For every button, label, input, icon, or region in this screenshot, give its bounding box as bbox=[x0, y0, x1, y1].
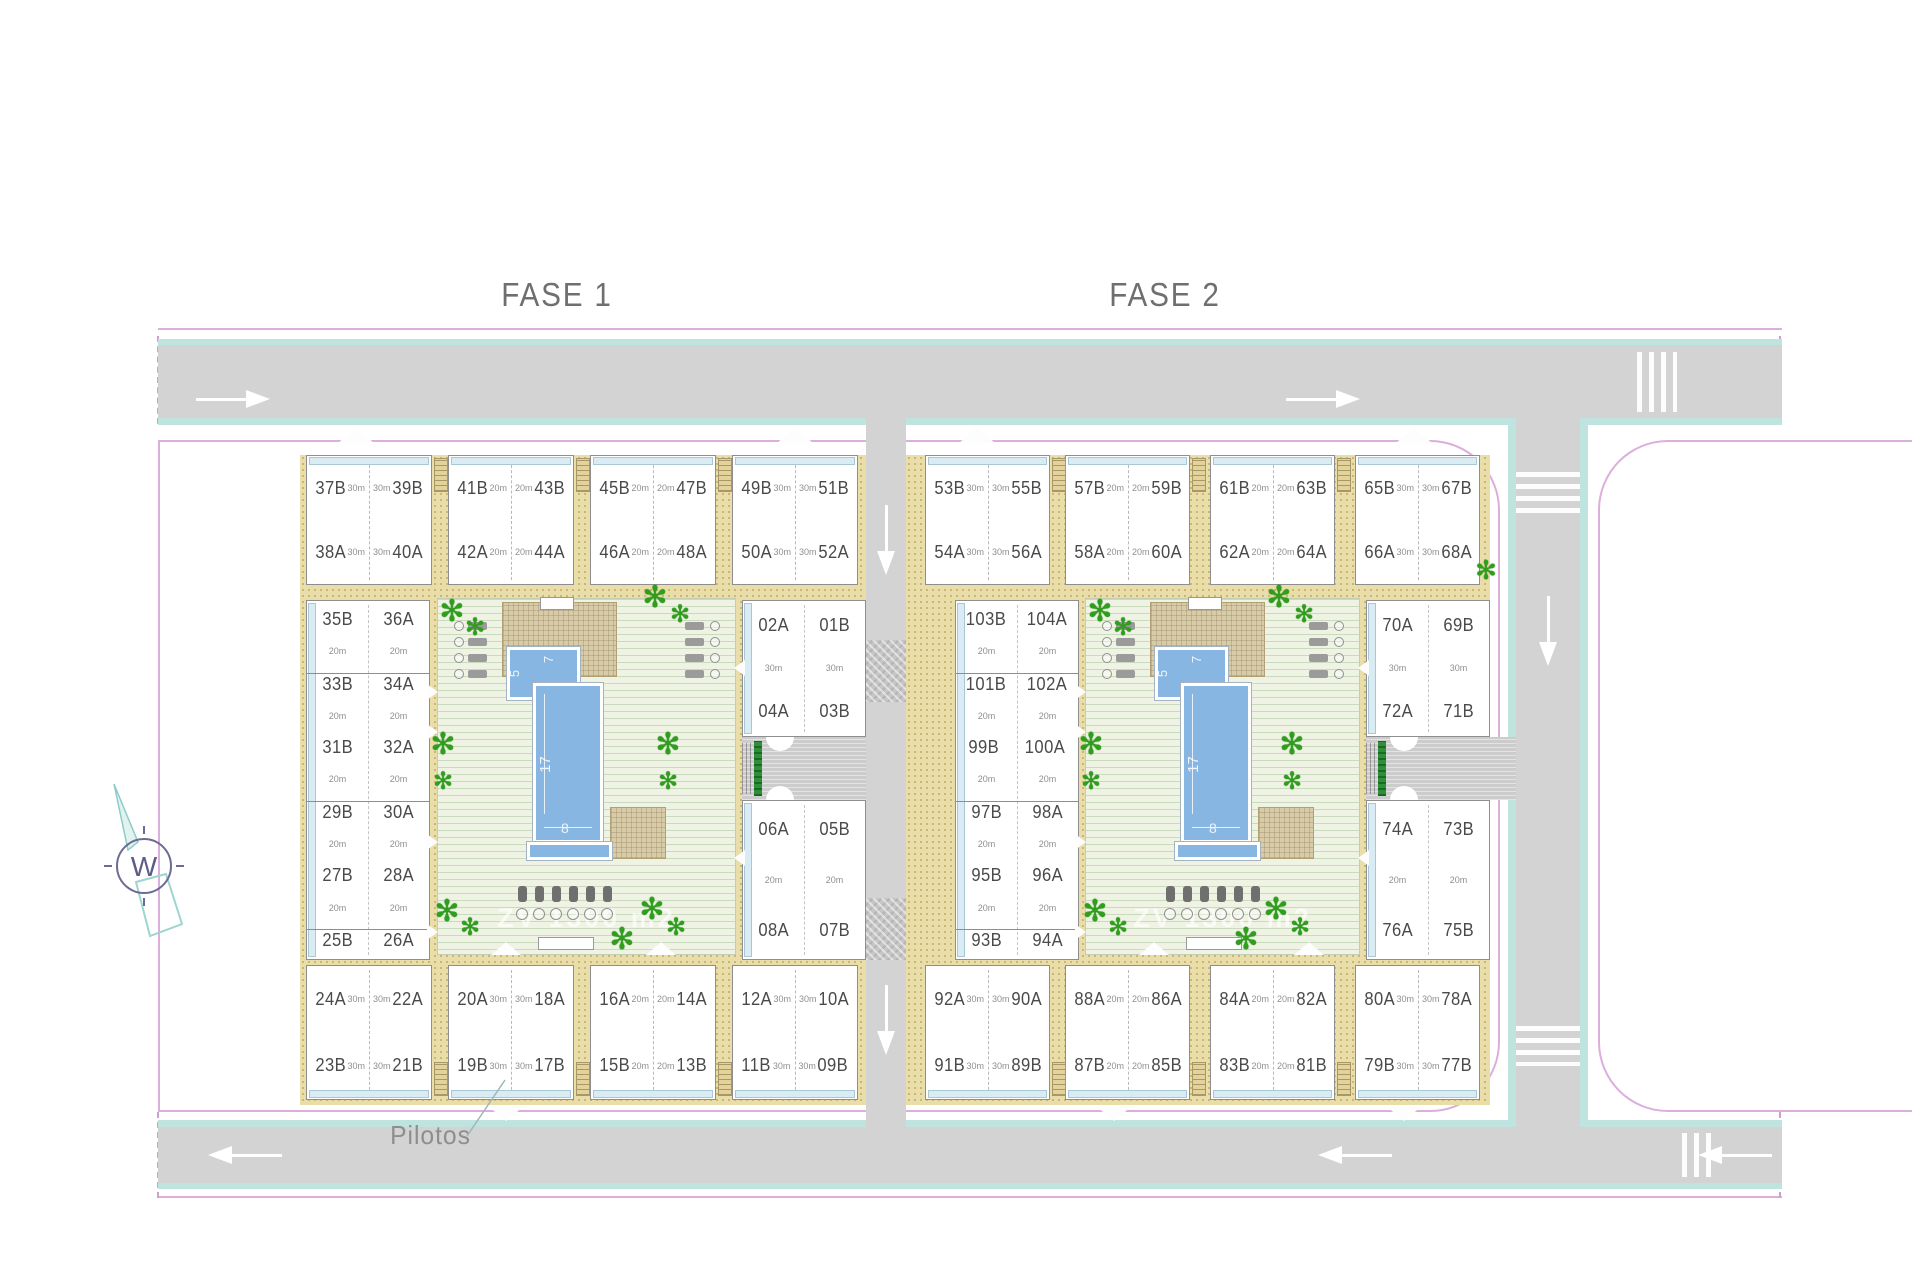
area-label: 20m bbox=[1107, 547, 1125, 557]
unit-label: 63B bbox=[1296, 478, 1327, 499]
area-label: 30m bbox=[373, 547, 391, 557]
area-label: 30m bbox=[1397, 1061, 1415, 1071]
unit-label: 26A bbox=[383, 930, 414, 951]
building: 35B36A20m20m33B34A20m20m31B32A20m20m29B3… bbox=[306, 600, 430, 960]
area-labels: 20m20m bbox=[1367, 875, 1489, 885]
side-table bbox=[1249, 908, 1261, 920]
terrace-strip bbox=[1213, 1090, 1332, 1098]
unit-label: 83B bbox=[1219, 1055, 1250, 1076]
building: 16A20m20m14A15B20m20m13B bbox=[590, 965, 716, 1100]
unit-row: 101B102A bbox=[956, 673, 1078, 695]
unit-row: 45B20m20m47B bbox=[591, 478, 715, 499]
area-labels: 30m30m bbox=[1397, 994, 1440, 1004]
building: 88A20m20m86A87B20m20m85B bbox=[1065, 965, 1190, 1100]
area-label: 20m bbox=[632, 994, 650, 1004]
sun-lounger bbox=[1116, 670, 1135, 678]
unit-label: 95B bbox=[971, 865, 1002, 886]
unit-label: 73B bbox=[1443, 819, 1474, 840]
area-label: 30m bbox=[967, 994, 985, 1004]
area-label: 30m bbox=[348, 547, 366, 557]
unit-label: 81B bbox=[1296, 1055, 1327, 1076]
unit-row: 70A69B bbox=[1367, 615, 1489, 636]
palm-tree-icon: ✻ bbox=[1233, 925, 1258, 955]
area-label: 20m bbox=[1107, 994, 1125, 1004]
entry-plaza bbox=[1366, 737, 1516, 800]
terrace-strip bbox=[1068, 457, 1187, 465]
area-label: 30m bbox=[1450, 663, 1468, 673]
sun-lounger bbox=[586, 886, 595, 902]
pool-dim-label: 5 bbox=[507, 670, 522, 677]
area-label: 20m bbox=[329, 711, 347, 721]
area-labels: 20m20m bbox=[1107, 994, 1150, 1004]
building: 41B20m20m43B42A20m20m44A bbox=[448, 455, 574, 585]
unit-label: 10A bbox=[818, 989, 849, 1010]
terrace-strip bbox=[1068, 1090, 1187, 1098]
area-label: 30m bbox=[799, 483, 817, 493]
unit-row: 79B30m30m77B bbox=[1356, 1055, 1479, 1076]
side-table bbox=[1102, 669, 1112, 679]
side-table bbox=[567, 908, 579, 920]
area-labels: 30m30m bbox=[773, 1061, 816, 1071]
unit-label: 49B bbox=[741, 478, 772, 499]
terrace-strip bbox=[309, 1090, 429, 1098]
area-labels: 20m20m bbox=[956, 711, 1078, 721]
area-labels: 20m20m bbox=[632, 483, 675, 493]
area-label: 20m bbox=[1252, 994, 1270, 1004]
unit-row: 103B104A bbox=[956, 609, 1078, 630]
area-label: 20m bbox=[1039, 774, 1057, 784]
area-label: 20m bbox=[490, 547, 508, 557]
fase1-title: FASE 1 bbox=[501, 276, 613, 314]
unit-row: 33B34A bbox=[307, 673, 429, 695]
unit-label: 94A bbox=[1032, 930, 1063, 951]
crosswalk bbox=[1516, 472, 1580, 516]
unit-row: 65B30m30m67B bbox=[1356, 478, 1479, 499]
path-corner bbox=[766, 786, 794, 800]
boundary-line-bottom bbox=[158, 1196, 1782, 1198]
unit-row: 61B20m20m63B bbox=[1211, 478, 1334, 499]
gable-marker bbox=[338, 428, 374, 443]
gable-marker bbox=[777, 428, 813, 443]
sun-lounger bbox=[468, 654, 487, 662]
unit-label: 82A bbox=[1296, 989, 1327, 1010]
unit-label: 78A bbox=[1441, 989, 1472, 1010]
unit-row: 72A71B bbox=[1367, 701, 1489, 722]
area-label: 30m bbox=[967, 1061, 985, 1071]
road-top bbox=[158, 345, 1782, 418]
area-labels: 30m30m bbox=[967, 1061, 1010, 1071]
area-labels: 30m30m bbox=[743, 663, 865, 673]
unit-label: 71B bbox=[1443, 701, 1474, 722]
sun-lounger bbox=[518, 886, 527, 902]
stair-core bbox=[718, 1062, 732, 1096]
unit-row: 46A20m20m48A bbox=[591, 542, 715, 563]
area-labels: 20m20m bbox=[307, 774, 429, 784]
unit-label: 06A bbox=[758, 819, 789, 840]
terrace-strip bbox=[735, 457, 855, 465]
area-labels: 30m30m bbox=[967, 994, 1010, 1004]
building: 49B30m30m51B50A30m30m52A bbox=[732, 455, 858, 585]
palm-tree-icon: ✻ bbox=[1113, 616, 1133, 640]
building: 37B30m30m39B38A30m30m40A bbox=[306, 455, 432, 585]
unit-label: 92A bbox=[934, 989, 965, 1010]
east-parcel bbox=[1598, 440, 1912, 1112]
side-table bbox=[1102, 653, 1112, 663]
building: 02A01B30m30m04A03B bbox=[742, 600, 866, 737]
area-label: 20m bbox=[1252, 547, 1270, 557]
area-labels: 20m20m bbox=[956, 646, 1078, 656]
plaza-stairs bbox=[742, 743, 752, 794]
stair-core bbox=[718, 458, 732, 492]
palm-tree-icon: ✻ bbox=[642, 583, 667, 613]
pool-dim-label: 7 bbox=[541, 656, 556, 663]
area-label: 30m bbox=[992, 547, 1010, 557]
sun-lounger bbox=[685, 670, 704, 678]
unit-label: 75B bbox=[1443, 920, 1474, 941]
side-table bbox=[454, 637, 464, 647]
building: 70A69B30m30m72A71B bbox=[1366, 600, 1490, 737]
area-labels: 30m30m bbox=[348, 547, 391, 557]
area-labels: 30m30m bbox=[774, 483, 817, 493]
area-label: 30m bbox=[1397, 994, 1415, 1004]
unit-label: 30A bbox=[383, 802, 414, 823]
direction-arrow-left bbox=[1698, 1146, 1772, 1164]
area-labels: 30m30m bbox=[1367, 663, 1489, 673]
area-label: 20m bbox=[390, 903, 408, 913]
area-label: 30m bbox=[348, 1061, 366, 1071]
crosswalk bbox=[1637, 352, 1677, 412]
palm-tree-icon: ✻ bbox=[658, 770, 678, 794]
unit-label: 12A bbox=[741, 989, 772, 1010]
area-labels: 20m20m bbox=[1252, 1061, 1295, 1071]
unit-label: 80A bbox=[1364, 989, 1395, 1010]
side-table bbox=[1334, 653, 1344, 663]
area-labels: 30m30m bbox=[348, 994, 391, 1004]
unit-label: 58A bbox=[1074, 542, 1105, 563]
area-label: 30m bbox=[774, 547, 792, 557]
direction-arrow-right bbox=[196, 390, 270, 408]
planter-strip bbox=[1378, 741, 1386, 796]
gable-marker bbox=[959, 428, 995, 443]
area-label: 20m bbox=[1132, 994, 1150, 1004]
palm-tree-icon: ✻ bbox=[434, 897, 459, 927]
pool-dim-label: 17 bbox=[537, 756, 554, 773]
unit-label: 97B bbox=[971, 802, 1002, 823]
side-table bbox=[1181, 908, 1193, 920]
area-label: 20m bbox=[632, 483, 650, 493]
area-label: 20m bbox=[1107, 1061, 1125, 1071]
unit-label: 85B bbox=[1151, 1055, 1182, 1076]
plaza-stairs bbox=[1366, 743, 1376, 794]
pool-dim-label: 8 bbox=[1209, 820, 1217, 836]
unit-label: 48A bbox=[676, 542, 707, 563]
palm-tree-icon: ✻ bbox=[1294, 603, 1314, 627]
area-label: 30m bbox=[1422, 1061, 1440, 1071]
unit-row: 42A20m20m44A bbox=[449, 542, 573, 563]
area-labels: 20m20m bbox=[490, 483, 533, 493]
direction-arrow-down bbox=[877, 985, 895, 1055]
area-labels: 20m20m bbox=[632, 994, 675, 1004]
building: 92A30m30m90A91B30m30m89B bbox=[925, 965, 1050, 1100]
area-label: 20m bbox=[515, 547, 533, 557]
deck-structure bbox=[1188, 597, 1222, 610]
unit-row: 12A30m30m10A bbox=[733, 989, 857, 1010]
area-label: 30m bbox=[1422, 483, 1440, 493]
building: 84A20m20m82A83B20m20m81B bbox=[1210, 965, 1335, 1100]
unit-label: 64A bbox=[1296, 542, 1327, 563]
area-labels: 20m20m bbox=[1252, 483, 1295, 493]
path-corner bbox=[1390, 786, 1418, 800]
building: 65B30m30m67B66A30m30m68A bbox=[1355, 455, 1480, 585]
crosswalk bbox=[1516, 1026, 1580, 1066]
area-labels: 20m20m bbox=[956, 774, 1078, 784]
unit-label: 100A bbox=[1025, 737, 1066, 758]
sun-lounger bbox=[569, 886, 578, 902]
unit-row: 38A30m30m40A bbox=[307, 542, 431, 563]
unit-label: 47B bbox=[676, 478, 707, 499]
pergola-deck bbox=[610, 807, 666, 859]
area-label: 20m bbox=[978, 903, 996, 913]
unit-label: 05B bbox=[819, 819, 850, 840]
area-label: 20m bbox=[1450, 875, 1468, 885]
unit-label: 32A bbox=[383, 737, 414, 758]
area-labels: 20m20m bbox=[1107, 1061, 1150, 1071]
area-labels: 20m20m bbox=[632, 1061, 675, 1071]
side-table bbox=[550, 908, 562, 920]
side-table bbox=[1334, 621, 1344, 631]
stair-core bbox=[1052, 458, 1066, 492]
area-labels: 20m20m bbox=[490, 547, 533, 557]
unit-row: 76A75B bbox=[1367, 920, 1489, 941]
sun-lounger bbox=[1200, 886, 1209, 902]
building: 103B104A20m20m101B102A20m20m99B100A20m20… bbox=[955, 600, 1079, 960]
area-labels: 20m20m bbox=[1107, 483, 1150, 493]
unit-label: 17B bbox=[534, 1055, 565, 1076]
area-label: 20m bbox=[1039, 903, 1057, 913]
unit-row: 74A73B bbox=[1367, 819, 1489, 840]
pool-dim-label: 8 bbox=[561, 820, 569, 836]
terrace-strip bbox=[928, 457, 1047, 465]
sun-lounger bbox=[1251, 886, 1260, 902]
area-label: 20m bbox=[632, 1061, 650, 1071]
side-table bbox=[584, 908, 596, 920]
sun-lounger bbox=[552, 886, 561, 902]
area-labels: 20m20m bbox=[307, 839, 429, 849]
unit-label: 53B bbox=[934, 478, 965, 499]
palm-tree-icon: ✻ bbox=[670, 603, 690, 627]
unit-label: 93B bbox=[971, 930, 1002, 951]
path-corner bbox=[766, 737, 794, 751]
area-label: 20m bbox=[1039, 839, 1057, 849]
unit-label: 37B bbox=[315, 478, 346, 499]
deck-structure bbox=[540, 597, 574, 610]
building: 53B30m30m55B54A30m30m56A bbox=[925, 455, 1050, 585]
palm-tree-icon: ✻ bbox=[1266, 583, 1291, 613]
area-label: 30m bbox=[798, 1061, 816, 1071]
side-table bbox=[516, 908, 528, 920]
unit-label: 13B bbox=[676, 1055, 707, 1076]
area-label: 30m bbox=[490, 1061, 508, 1071]
boundary-line-top bbox=[158, 328, 1782, 330]
unit-row: 84A20m20m82A bbox=[1211, 989, 1334, 1010]
area-label: 30m bbox=[765, 663, 783, 673]
pool-dim-label: 5 bbox=[1155, 670, 1170, 677]
unit-label: 16A bbox=[599, 989, 630, 1010]
palm-tree-icon: ✻ bbox=[1290, 916, 1310, 940]
area-label: 20m bbox=[515, 483, 533, 493]
stair-core bbox=[434, 1062, 448, 1096]
unit-row: 88A20m20m86A bbox=[1066, 989, 1189, 1010]
unit-row: 62A20m20m64A bbox=[1211, 542, 1334, 563]
unit-row: 57B20m20m59B bbox=[1066, 478, 1189, 499]
unit-label: 90A bbox=[1011, 989, 1042, 1010]
area-label: 20m bbox=[490, 483, 508, 493]
unit-label: 98A bbox=[1032, 802, 1063, 823]
area-label: 20m bbox=[1132, 547, 1150, 557]
sun-lounger bbox=[1309, 654, 1328, 662]
palm-tree-icon: ✻ bbox=[1081, 770, 1101, 794]
unit-row: 06A05B bbox=[743, 819, 865, 840]
area-label: 30m bbox=[373, 994, 391, 1004]
pergola-deck bbox=[1258, 807, 1314, 859]
unit-label: 43B bbox=[534, 478, 565, 499]
unit-label: 99B bbox=[968, 737, 999, 758]
unit-label: 29B bbox=[322, 802, 353, 823]
area-label: 20m bbox=[978, 839, 996, 849]
side-table bbox=[1334, 637, 1344, 647]
unit-row: 04A03B bbox=[743, 701, 865, 722]
side-table bbox=[710, 621, 720, 631]
unit-label: 56A bbox=[1011, 542, 1042, 563]
unit-label: 08A bbox=[758, 920, 789, 941]
area-labels: 30m30m bbox=[774, 547, 817, 557]
unit-label: 50A bbox=[741, 542, 772, 563]
unit-label: 84A bbox=[1219, 989, 1250, 1010]
area-label: 20m bbox=[632, 547, 650, 557]
unit-row: 31B32A bbox=[307, 737, 429, 758]
unit-label: 20A bbox=[457, 989, 488, 1010]
area-label: 30m bbox=[967, 547, 985, 557]
unit-label: 36A bbox=[383, 609, 414, 630]
area-label: 30m bbox=[515, 1061, 533, 1071]
unit-label: 101B bbox=[966, 674, 1007, 695]
side-table bbox=[1198, 908, 1210, 920]
unit-row: 15B20m20m13B bbox=[591, 1055, 715, 1076]
area-label: 20m bbox=[826, 875, 844, 885]
area-labels: 30m30m bbox=[348, 1061, 391, 1071]
area-label: 30m bbox=[348, 483, 366, 493]
terrace-strip bbox=[309, 457, 429, 465]
side-table bbox=[1334, 669, 1344, 679]
unit-label: 11B bbox=[741, 1055, 771, 1076]
area-label: 20m bbox=[978, 774, 996, 784]
direction-arrow-down bbox=[877, 505, 895, 575]
area-label: 20m bbox=[1252, 483, 1270, 493]
unit-label: 74A bbox=[1382, 819, 1413, 840]
area-label: 20m bbox=[657, 1061, 675, 1071]
pool-dim-label: 17 bbox=[1185, 756, 1202, 773]
unit-label: 31B bbox=[322, 737, 353, 758]
building: 80A30m30m78A79B30m30m77B bbox=[1355, 965, 1480, 1100]
area-label: 20m bbox=[1277, 994, 1295, 1004]
unit-label: 04A bbox=[758, 701, 789, 722]
unit-label: 44A bbox=[534, 542, 565, 563]
area-label: 20m bbox=[329, 774, 347, 784]
unit-label: 45B bbox=[599, 478, 630, 499]
unit-label: 88A bbox=[1074, 989, 1105, 1010]
unit-row: 58A20m20m60A bbox=[1066, 542, 1189, 563]
terrace-strip bbox=[735, 1090, 855, 1098]
side-table bbox=[710, 637, 720, 647]
unit-row: 80A30m30m78A bbox=[1356, 989, 1479, 1010]
unit-label: 21B bbox=[392, 1055, 423, 1076]
unit-label: 25B bbox=[322, 930, 353, 951]
sun-lounger bbox=[1183, 886, 1192, 902]
building: 61B20m20m63B62A20m20m64A bbox=[1210, 455, 1335, 585]
side-table bbox=[710, 653, 720, 663]
unit-label: 76A bbox=[1382, 920, 1413, 941]
area-labels: 20m20m bbox=[743, 875, 865, 885]
direction-arrow-down bbox=[1539, 596, 1557, 666]
area-label: 30m bbox=[373, 483, 391, 493]
sun-lounger bbox=[603, 886, 612, 902]
palm-tree-icon: ✻ bbox=[1082, 897, 1107, 927]
unit-row: 29B30A bbox=[307, 801, 429, 823]
area-label: 30m bbox=[373, 1061, 391, 1071]
side-table bbox=[1232, 908, 1244, 920]
area-label: 30m bbox=[799, 994, 817, 1004]
sun-lounger bbox=[685, 638, 704, 646]
unit-row: 16A20m20m14A bbox=[591, 989, 715, 1010]
unit-row: 25B26A bbox=[307, 929, 429, 951]
unit-row: 27B28A bbox=[307, 865, 429, 886]
area-label: 30m bbox=[992, 994, 1010, 1004]
area-label: 20m bbox=[390, 646, 408, 656]
side-table bbox=[710, 669, 720, 679]
area-label: 20m bbox=[978, 646, 996, 656]
palm-tree-icon: ✻ bbox=[465, 616, 485, 640]
unit-label: 40A bbox=[392, 542, 423, 563]
unit-label: 24A bbox=[315, 989, 346, 1010]
area-label: 20m bbox=[1107, 483, 1125, 493]
area-label: 20m bbox=[1389, 875, 1407, 885]
unit-row: 08A07B bbox=[743, 920, 865, 941]
area-labels: 20m20m bbox=[956, 903, 1078, 913]
stair-core bbox=[576, 458, 590, 492]
area-label: 30m bbox=[774, 994, 792, 1004]
unit-row: 41B20m20m43B bbox=[449, 478, 573, 499]
area-label: 20m bbox=[1039, 646, 1057, 656]
palm-tree-icon: ✻ bbox=[639, 895, 664, 925]
unit-label: 68A bbox=[1441, 542, 1472, 563]
area-label: 30m bbox=[773, 1061, 791, 1071]
area-label: 30m bbox=[1397, 547, 1415, 557]
unit-label: 69B bbox=[1443, 615, 1474, 636]
unit-label: 42A bbox=[457, 542, 488, 563]
unit-label: 65B bbox=[1364, 478, 1395, 499]
courtyard-structure bbox=[538, 937, 594, 950]
area-label: 20m bbox=[329, 839, 347, 849]
area-label: 30m bbox=[1422, 547, 1440, 557]
pedestrian-hatch bbox=[866, 898, 906, 960]
site-plan: FASE 1 FASE 2 W Pilotos 37B30m30m39B38A3… bbox=[0, 0, 1920, 1280]
area-label: 20m bbox=[1277, 483, 1295, 493]
area-labels: 30m30m bbox=[490, 1061, 533, 1071]
unit-label: 77B bbox=[1441, 1055, 1472, 1076]
unit-row: 83B20m20m81B bbox=[1211, 1055, 1334, 1076]
gable-marker bbox=[1386, 1106, 1422, 1121]
side-table bbox=[1215, 908, 1227, 920]
